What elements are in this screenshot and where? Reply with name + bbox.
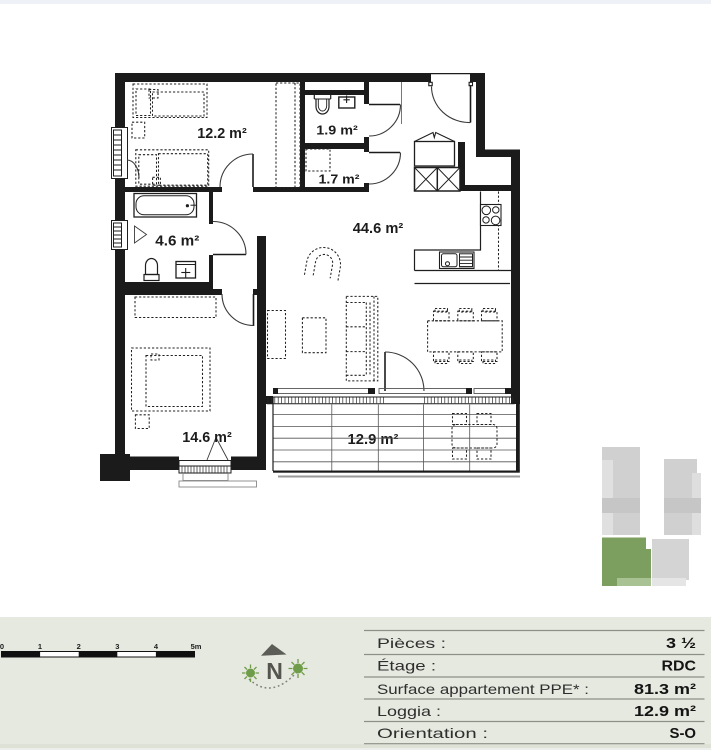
- svg-text:S-O: S-O: [670, 725, 697, 742]
- svg-text:4.6 m²: 4.6 m²: [155, 234, 199, 250]
- svg-text:Surface appartement PPE* :: Surface appartement PPE* :: [377, 681, 589, 697]
- svg-text:Pièces :: Pièces :: [377, 635, 446, 651]
- svg-text:Orientation :: Orientation :: [377, 725, 488, 741]
- svg-text:1.9 m²: 1.9 m²: [316, 123, 358, 138]
- svg-text:RDC: RDC: [662, 658, 697, 675]
- svg-text:1: 1: [38, 642, 42, 651]
- svg-text:12.9 m²: 12.9 m²: [348, 432, 399, 448]
- svg-text:44.6 m²: 44.6 m²: [353, 221, 404, 237]
- svg-text:81.3 m²: 81.3 m²: [634, 681, 696, 698]
- svg-text:12.9 m²: 12.9 m²: [634, 703, 696, 720]
- svg-text:Étage :: Étage :: [377, 658, 436, 674]
- svg-text:Loggia :: Loggia :: [377, 703, 441, 719]
- svg-text:3: 3: [115, 642, 119, 651]
- svg-text:1.7 m²: 1.7 m²: [319, 172, 361, 187]
- svg-text:0: 0: [0, 642, 4, 651]
- svg-text:12.2 m²: 12.2 m²: [197, 126, 247, 142]
- svg-text:3 ½: 3 ½: [666, 635, 696, 652]
- svg-text:N: N: [266, 658, 283, 684]
- svg-text:2: 2: [77, 642, 81, 651]
- svg-text:5m: 5m: [191, 642, 202, 651]
- svg-text:14.6 m²: 14.6 m²: [182, 430, 232, 446]
